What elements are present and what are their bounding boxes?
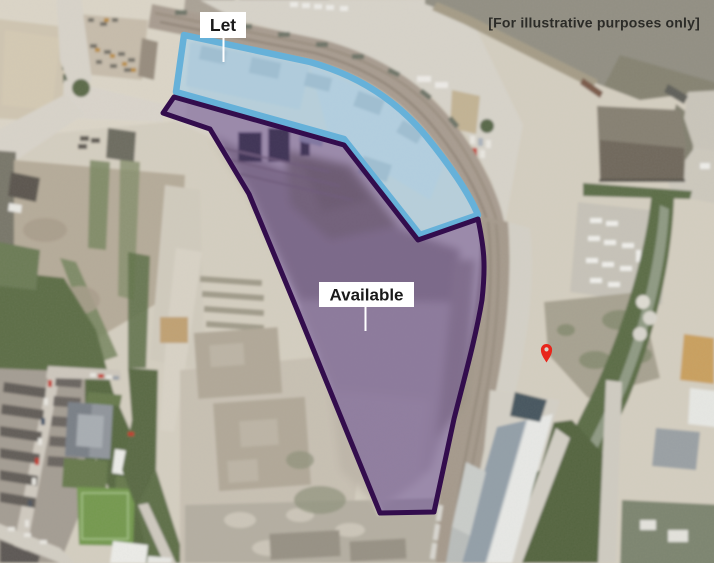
svg-text:Available: Available	[329, 286, 403, 305]
svg-text:[For illustrative purposes onl: [For illustrative purposes only]	[488, 15, 700, 31]
svg-text:Let: Let	[210, 15, 236, 35]
